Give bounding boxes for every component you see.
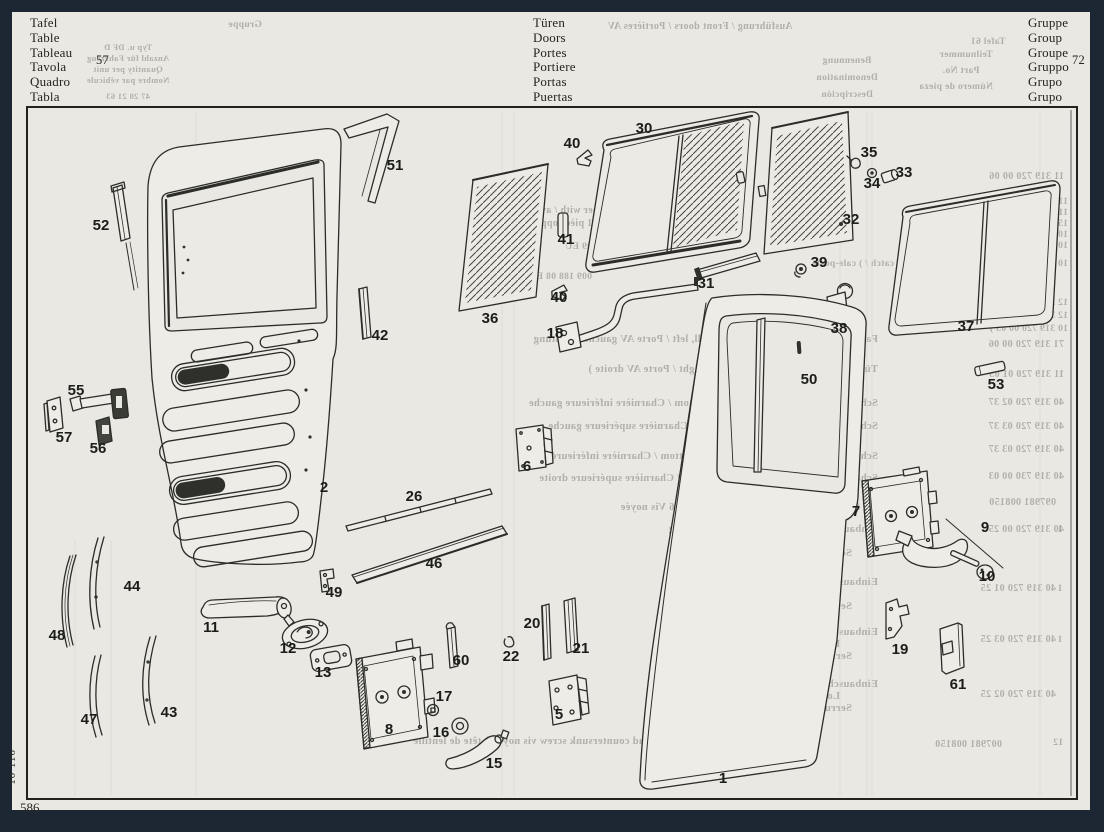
part-label-20: 20: [524, 615, 541, 632]
group-number: 72: [1072, 53, 1085, 68]
part-label-52: 52: [93, 217, 110, 234]
part-39-grommet: [795, 264, 806, 277]
part-label-34: 34: [864, 175, 881, 192]
part-label-15: 15: [486, 755, 503, 772]
group-label-fr: Groupe: [1028, 46, 1069, 61]
part-36-door-glass: [459, 164, 548, 311]
group-label-en: Group: [1028, 31, 1069, 46]
part-label-60: 60: [453, 652, 470, 669]
part-label-42: 42: [372, 327, 389, 344]
diagram-svg: Ausführung / Front doors / Portières AVG…: [0, 0, 1104, 832]
part-label-21: 21: [573, 640, 590, 657]
part-19-bracket: [886, 599, 909, 639]
part-label-55: 55: [68, 382, 85, 399]
part-8-door-lock: [356, 639, 435, 749]
part-40-clip-top: [577, 150, 592, 166]
part-label-47: 47: [81, 711, 98, 728]
part-61-block: [940, 623, 964, 674]
part-label-40: 40: [551, 289, 568, 306]
part-37-window-frame: [889, 181, 1060, 335]
part-label-16: 16: [433, 724, 450, 741]
bleedthrough-text: Benennung: [822, 56, 871, 66]
part-label-39: 39: [811, 254, 828, 271]
margin-code: 10 116: [6, 742, 18, 792]
part-16-washer: [452, 718, 468, 734]
bleedthrough-text: 40 319 720 03 25: [980, 634, 1056, 645]
part-label-2: 2: [320, 479, 328, 496]
part-label-5: 5: [555, 706, 563, 723]
bleedthrough-text: 47 20 21 63: [106, 91, 150, 101]
part-label-7: 7: [852, 503, 860, 520]
part-label-13: 13: [315, 664, 332, 681]
title-fr: Portes: [533, 46, 576, 61]
bleedthrough-text: 1: [1057, 525, 1062, 535]
part-label-57: 57: [56, 429, 73, 446]
part-label-30: 30: [636, 120, 653, 137]
bleedthrough-text: 40 319 720 03 37: [988, 444, 1064, 455]
bleedthrough-text: Gruppe: [228, 20, 262, 30]
part-label-18: 18: [547, 325, 564, 342]
part-43-curved-moulding: [143, 636, 156, 725]
table-label-fr: Tableau: [30, 46, 72, 61]
part-42-strip: [359, 287, 371, 339]
table-label-block: Tafel Table Tableau Tavola Quadro Tabla …: [30, 16, 72, 105]
part-label-22: 22: [503, 648, 520, 665]
part-label-50: 50: [801, 371, 818, 388]
group-label-pt: Grupo: [1028, 75, 1069, 90]
part-52-trim-strip: [111, 182, 138, 290]
part-label-44: 44: [124, 578, 141, 595]
bleedthrough-text: Part No.: [942, 66, 979, 76]
part-label-11: 11: [203, 619, 219, 636]
part-label-51: 51: [387, 157, 404, 174]
bleedthrough-text: Teilnummer: [939, 50, 993, 60]
part-57-plate: [44, 397, 63, 432]
title-pt: Portas: [533, 75, 576, 90]
table-label-en: Table: [30, 31, 72, 46]
part-label-48: 48: [49, 627, 66, 644]
part-label-61: 61: [950, 676, 967, 693]
bleedthrough-text: Typ u. DF D: [104, 42, 152, 52]
bleedthrough-text: 40 319 720 02 25: [980, 689, 1056, 700]
part-label-37: 37: [958, 318, 975, 335]
bleedthrough-text: Nombre par véhicule: [87, 75, 170, 85]
bleedthrough-text: Descripción: [821, 90, 873, 100]
bleedthrough-text: 71 319 720 00 06: [988, 339, 1064, 350]
part-label-35: 35: [861, 144, 878, 161]
part-30-sliding-window: [586, 112, 759, 272]
bleedthrough-text: Tafel 61: [971, 37, 1006, 47]
catalog-plate: Ausführung / Front doors / Portières AVG…: [0, 0, 1104, 832]
bleedthrough-text: Ausführung / Front doors / Portières AV: [607, 21, 793, 32]
part-label-8: 8: [385, 721, 393, 738]
part-label-40: 40: [564, 135, 581, 152]
part-label-17: 17: [436, 688, 453, 705]
table-label-pt: Quadro: [30, 75, 72, 90]
bleedthrough-text: 097981 008150: [989, 497, 1056, 508]
table-label-es: Tabla: [30, 90, 72, 105]
plate-title-block: Türen Doors Portes Portiere Portas Puert…: [533, 16, 576, 105]
title-en: Doors: [533, 31, 576, 46]
table-label-it: Tavola: [30, 60, 72, 75]
part-label-46: 46: [426, 555, 443, 572]
bleedthrough-text: 40 319 720 03 37: [988, 421, 1064, 432]
part-2-left-door-shell: [148, 129, 341, 569]
part-label-56: 56: [90, 440, 107, 457]
part-22-clip: [504, 637, 514, 647]
part-label-33: 33: [896, 164, 913, 181]
bleedthrough-text: 007981 008150: [935, 739, 1002, 750]
part-label-26: 26: [406, 488, 423, 505]
part-20-strip: [542, 604, 551, 660]
group-label-it: Gruppo: [1028, 60, 1069, 75]
title-es: Puertas: [533, 90, 576, 105]
bleedthrough-text: Número de pieza: [919, 82, 993, 92]
part-label-49: 49: [326, 584, 343, 601]
bleedthrough-text: 1: [1057, 635, 1062, 645]
title-de: Türen: [533, 16, 576, 31]
part-6-hinge: [516, 425, 553, 471]
bleedthrough-text: 12: [1053, 738, 1063, 748]
group-label-block: Gruppe Group Groupe Gruppo Grupo Grupo 7…: [1028, 16, 1069, 105]
part-label-53: 53: [988, 376, 1005, 393]
plate-page-number: 586: [20, 800, 40, 816]
bleedthrough-text: 40 319 720 00 25: [988, 524, 1064, 535]
part-label-32: 32: [843, 211, 860, 228]
part-label-43: 43: [161, 704, 178, 721]
bleedthrough-text: 1: [1057, 584, 1062, 594]
part-label-31: 31: [698, 275, 715, 292]
part-label-38: 38: [831, 320, 848, 337]
table-label-de: Tafel: [30, 16, 72, 31]
part-label-36: 36: [482, 310, 499, 327]
group-label-es: Grupo: [1028, 90, 1069, 105]
title-it: Portiere: [533, 60, 576, 75]
bleedthrough-text: Denomination: [816, 73, 878, 83]
part-label-41: 41: [558, 231, 575, 248]
part-44-curved-moulding: [90, 537, 104, 629]
part-label-19: 19: [892, 641, 909, 658]
group-label-de: Gruppe: [1028, 16, 1069, 31]
part-label-1: 1: [719, 770, 727, 787]
part-label-9: 9: [981, 519, 989, 536]
part-7-door-lock: [862, 467, 939, 557]
table-number: 57: [96, 53, 109, 68]
part-label-6: 6: [523, 458, 531, 475]
part-label-10: 10: [979, 568, 996, 585]
part-32-quarter-glass: [758, 112, 853, 254]
bleedthrough-text: 40 319 720 02 37: [988, 397, 1064, 408]
bleedthrough-text: 40 319 730 00 03: [988, 471, 1064, 482]
part-label-12: 12: [280, 640, 297, 657]
